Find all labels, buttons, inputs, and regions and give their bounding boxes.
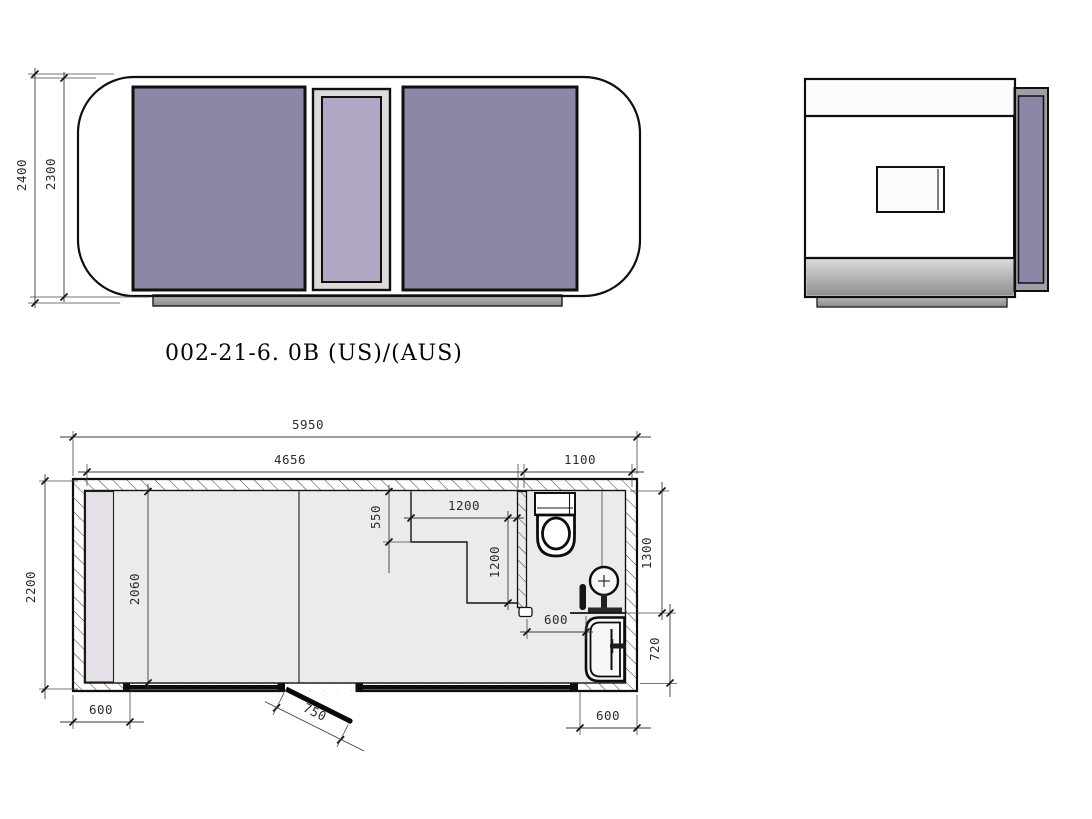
dim-label-1200h: 1200 [448,498,480,513]
dim-label-2200: 2200 [23,571,38,603]
model-label: 002-21-6. 0B (US)/(AUS) [165,341,463,366]
front-elevation-view: 2400 2300 [14,68,640,308]
front-right-window [403,87,577,290]
dim-label-4656: 4656 [274,452,306,467]
wardrobe-strip [86,492,114,683]
dim-label-2300: 2300 [43,158,58,190]
entry-door-swing: 750 [265,689,364,751]
dim-shower-depth: 720 [640,604,677,697]
dim-overall-depth: 2200 [23,474,78,699]
dim-left-wall-segment: 600 [60,692,144,730]
front-left-window [133,87,305,290]
bottom-window-bar-right [363,685,570,690]
dim-label-1300: 1300 [639,537,654,569]
technical-drawing-page: 2400 2300 002-21-6. 0B (US)/(AUS) [0,0,1092,819]
dim-label-720: 720 [647,637,662,661]
dim-overall-height: 2400 [14,68,120,308]
dim-label-550: 550 [368,505,383,529]
dim-overall-width: 5950 [60,417,651,476]
dim-label-2400: 2400 [14,159,29,191]
dim-shower-width: 600 [566,692,651,735]
side-top-band [807,81,1014,116]
sink-pedestal [601,594,607,608]
drawing-canvas: 2400 2300 002-21-6. 0B (US)/(AUS) [0,0,1092,819]
dim-label-600-bathdoor: 600 [544,612,568,627]
side-base-skid [817,297,1007,307]
dim-label-2060: 2060 [127,573,142,605]
dim-label-600-right: 600 [596,708,620,723]
towel-bar [580,584,587,610]
bathroom-door-jamb [519,608,532,617]
floor-plan-view: 750 5950 4656 1100 2200 [23,417,677,751]
toilet-bowl-inner [543,518,570,549]
bathroom-partition-wall [518,492,527,608]
dim-label-600-left: 600 [89,702,113,717]
side-small-window [877,167,944,212]
side-elevation-view [805,79,1048,307]
entry-door-glass [322,97,381,282]
sink-base [588,608,622,613]
dim-label-750: 750 [301,700,329,724]
toilet [535,493,575,556]
bottom-window-bar-left [130,685,278,690]
shower-tub [586,618,626,682]
side-bottom-band [807,258,1014,296]
dim-label-1200v: 1200 [487,546,502,578]
dim-label-5950: 5950 [292,417,324,432]
side-end-window-glass [1019,96,1044,283]
dim-label-1100: 1100 [564,452,596,467]
